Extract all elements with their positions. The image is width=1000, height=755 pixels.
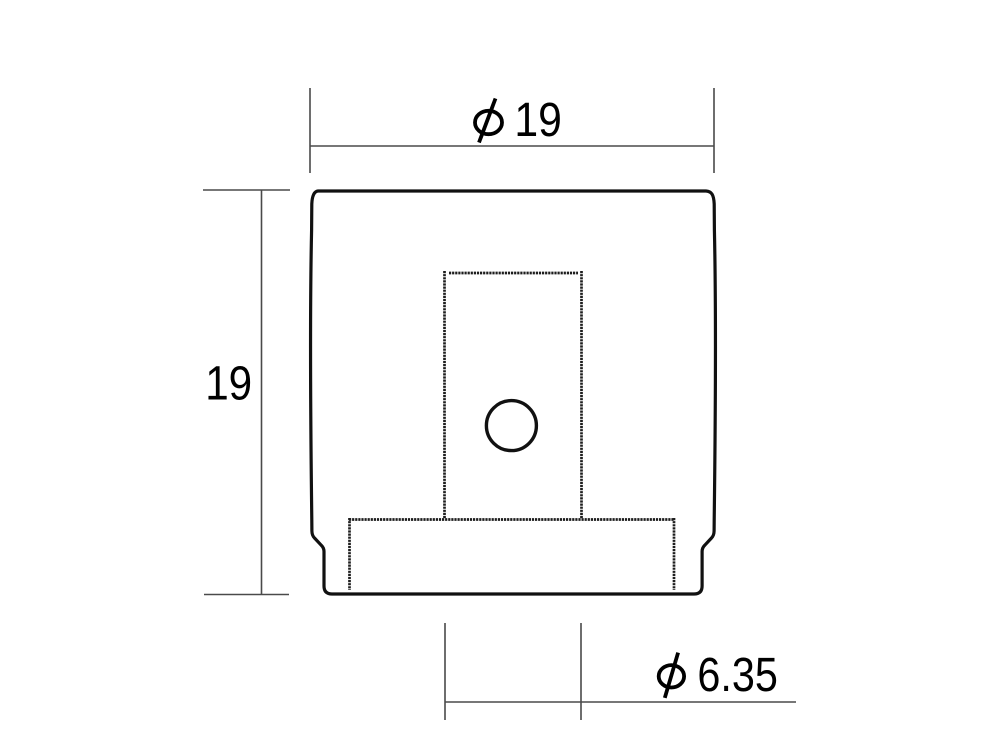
svg-text:19: 19 (514, 92, 562, 146)
svg-text:6.35: 6.35 (697, 648, 778, 702)
svg-text:19: 19 (205, 356, 252, 410)
